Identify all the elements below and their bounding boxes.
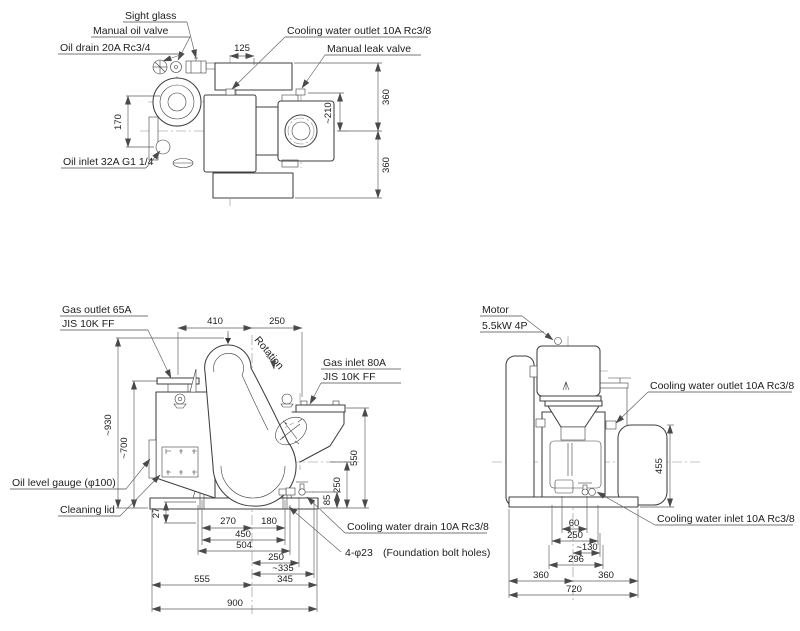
dim-720: 720 <box>566 584 582 595</box>
dim-455: 455 <box>654 458 665 474</box>
pump-casing-front <box>205 331 296 506</box>
discharge-flange-top <box>285 115 317 147</box>
dim-550: 550 <box>349 450 360 466</box>
dim-170: 170 <box>113 114 124 130</box>
dim-270: 270 <box>220 516 236 527</box>
leak-valve-port-top <box>296 89 305 95</box>
dim-360-right: 360 <box>598 570 614 581</box>
top-view: 125 170 360 360 ~210 Sight glass Manual … <box>58 10 431 206</box>
dim-250-side: 250 <box>567 530 583 541</box>
motor-base-plate <box>540 396 601 401</box>
dim-504: 504 <box>236 540 252 551</box>
cleaning-lid-plate <box>162 447 198 477</box>
label-sight-glass: Sight glass <box>125 10 176 22</box>
oil-drain-valve <box>153 60 167 74</box>
cooling-outlet-fitting <box>606 421 616 429</box>
label-gas-outlet-2: JIS 10K FF <box>62 318 115 330</box>
label-cooling-water-outlet-top: Cooling water outlet 10A Rc3/8 <box>287 25 431 37</box>
dim-130: ~130 <box>576 542 597 553</box>
dim-900: 900 <box>227 598 243 609</box>
label-cooling-water-drain: Cooling water drain 10A Rc3/8 <box>347 521 489 533</box>
motor <box>530 338 600 397</box>
label-motor: Motor <box>482 304 509 316</box>
dim-345: 345 <box>277 574 293 585</box>
label-cooling-water-inlet-side: Cooling water inlet 10A Rc3/8 <box>657 513 795 525</box>
sight-glass-fitting <box>186 58 206 73</box>
dim-85: 85 <box>322 495 333 506</box>
dim-296: 296 <box>568 554 584 565</box>
label-foundation-bolt: 4-φ23 <box>345 547 373 559</box>
pump-top-outline <box>149 58 334 198</box>
label-gas-inlet-2: JIS 10K FF <box>323 371 376 383</box>
engineering-drawing-page: 125 170 360 360 ~210 Sight glass Manual … <box>0 0 800 631</box>
oil-level-gauge-edge <box>149 440 156 478</box>
eyebolt-right <box>282 394 292 404</box>
side-view: 455 60 250 ~130 296 360 360 720 <box>480 304 795 600</box>
label-manual-leak-valve: Manual leak valve <box>327 43 411 55</box>
dim-410: 410 <box>207 316 223 327</box>
suction-flange-top <box>149 78 201 168</box>
label-oil-drain: Oil drain 20A Rc3/4 <box>60 42 151 54</box>
label-foundation-bolt-note: (Foundation bolt holes) <box>383 547 490 559</box>
front-view: 410 250 ~930 ~700 550 250 85 27 <box>10 304 490 614</box>
label-gas-inlet-1: Gas inlet 80A <box>323 357 386 369</box>
pump-dimensional-drawing: 125 170 360 360 ~210 Sight glass Manual … <box>0 0 800 631</box>
dim-125: 125 <box>234 43 250 54</box>
label-motor-rating: 5.5kW 4P <box>482 320 528 332</box>
manual-oil-valve <box>171 62 182 73</box>
label-cooling-water-outlet-side: Cooling water outlet 10A Rc3/8 <box>650 380 794 392</box>
label-oil-level-gauge: Oil level gauge (φ100) <box>12 477 116 489</box>
dim-930: ~930 <box>103 414 114 435</box>
label-manual-oil-valve: Manual oil valve <box>93 25 168 37</box>
dim-250-top: 250 <box>269 316 285 327</box>
dim-335: ~335 <box>272 563 293 574</box>
motor-adapter-plate <box>545 401 602 406</box>
dim-555: 555 <box>194 574 210 585</box>
dim-360-rear: 360 <box>381 157 392 173</box>
dim-180: 180 <box>261 516 277 527</box>
base-frame-side <box>509 497 638 507</box>
dim-250-center: 250 <box>332 477 343 493</box>
left-end-cover <box>506 356 534 506</box>
dim-60: 60 <box>569 518 580 529</box>
label-oil-inlet: Oil inlet 32A G1 1/4 <box>63 156 154 168</box>
dim-450: 450 <box>235 529 251 540</box>
dim-210: ~210 <box>323 102 334 123</box>
oil-inlet-port <box>156 140 170 154</box>
dim-250-drain: 250 <box>268 552 284 563</box>
dim-360-front: 360 <box>381 89 392 105</box>
dim-700: ~700 <box>119 437 130 458</box>
dim-360-left: 360 <box>533 570 549 581</box>
cooling-outlet-port-top <box>226 89 235 95</box>
dim-27: 27 <box>151 508 162 519</box>
label-gas-outlet-1: Gas outlet 65A <box>62 304 131 316</box>
side-fitting-left <box>536 419 545 427</box>
label-cleaning-lid: Cleaning lid <box>60 504 115 516</box>
label-rotation: Rotation <box>252 334 286 372</box>
motor-eyebolt <box>555 338 562 345</box>
